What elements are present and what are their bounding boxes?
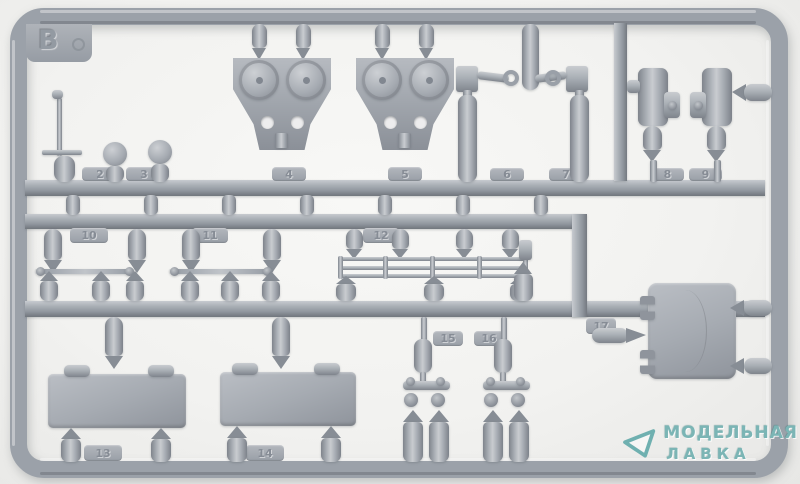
piston-rod [714, 160, 721, 182]
shield-disc-hub [303, 77, 310, 84]
rack-foot-tip [424, 276, 444, 284]
bracket-shell-tip [514, 262, 532, 274]
assembly-shell [483, 422, 503, 462]
shell-part [126, 281, 144, 301]
assembly-wheel [484, 393, 498, 407]
sprue-rail-1 [25, 180, 765, 196]
door-gate-right-tip [730, 300, 744, 316]
assembly-shell-tip [403, 410, 423, 422]
hatch-gate [272, 317, 290, 356]
lever-knob [52, 90, 63, 99]
assembly-shell-tip [483, 410, 503, 422]
lever-rod [57, 98, 62, 156]
linkage-cylinder [458, 95, 477, 182]
assembly-cylinder [414, 339, 432, 373]
assembly-wheel [511, 393, 525, 407]
part-number-tab: 10 [70, 228, 108, 243]
shield-gate [419, 24, 434, 48]
shell-part-tip [61, 428, 81, 439]
shell-part-tip [92, 271, 110, 281]
shell-part-tip [321, 426, 341, 438]
assembly-knob [406, 377, 415, 386]
rail-connector-stub [534, 195, 548, 215]
sprue-rail-vertical-mid [572, 214, 587, 317]
door-gate-right [744, 358, 772, 374]
door-seam [664, 290, 707, 372]
shell-part [40, 281, 58, 301]
part-number-tab: 5 [388, 167, 422, 181]
assembly-shell-tip [429, 410, 449, 422]
sprue-letter-tab: B [26, 24, 92, 62]
piston-stub [744, 84, 772, 101]
shell-part [227, 438, 247, 462]
shell-part-tip [262, 271, 280, 281]
part-number-tab: 13 [84, 445, 122, 461]
ball-pin-head [103, 142, 127, 166]
part-number-tab: 15 [433, 331, 463, 346]
door-gate-left-tip [626, 328, 646, 343]
linkage-cylinder [570, 95, 589, 182]
piston-boss-hub [668, 101, 677, 110]
assembly-knob [486, 377, 495, 386]
shield-hole [261, 116, 274, 129]
part-number-tab: 6 [490, 168, 524, 181]
piston-boss-hub [694, 101, 703, 110]
stamp-icon [72, 38, 85, 51]
assembly-shell-tip [509, 410, 529, 422]
door-hinge [640, 350, 655, 374]
assembly-shell [429, 422, 449, 462]
linkage-block [456, 66, 478, 92]
door-gate-right [744, 300, 772, 316]
frame-highlight-top [40, 10, 756, 13]
watermark-line1: МОДЕЛЬНАЯ [663, 423, 798, 443]
linkage-eye [503, 70, 519, 86]
ball-pin-base [151, 164, 169, 182]
door-gate-right-tip [730, 358, 744, 374]
hatch-gate-tip [272, 356, 290, 369]
rack-foot [336, 284, 356, 301]
shield-hole [384, 116, 397, 129]
rail-connector-stub [456, 195, 470, 215]
shield-gate [296, 24, 311, 48]
piston-stub [627, 80, 640, 93]
bracket-shell [514, 274, 533, 301]
assembly-stem [501, 317, 507, 341]
shell-part-tip [221, 271, 239, 281]
shield-hole [414, 116, 427, 129]
shell-part [44, 229, 62, 260]
shell-part-tip [151, 428, 171, 439]
hatch-gate [105, 317, 123, 356]
hatch-hinge [148, 365, 174, 377]
lever-base [54, 156, 75, 182]
shell-part [321, 438, 341, 462]
watermark-line2: ЛАВКА [663, 445, 798, 463]
sprue-letter: B [38, 25, 59, 56]
piston-body [702, 68, 732, 126]
shell-part [221, 281, 239, 301]
shell-part-tip [227, 426, 247, 438]
assembly-shell [509, 422, 529, 462]
rail-connector-stub [300, 195, 314, 215]
hatch-panel [220, 372, 356, 426]
assembly-knob [436, 377, 445, 386]
rack-post [383, 256, 388, 279]
hatch-hinge [64, 365, 90, 377]
part-number-tab: 14 [246, 445, 284, 461]
rack-gate [502, 229, 519, 249]
frame-highlight-right [766, 40, 769, 446]
frame-highlight-left [12, 40, 15, 446]
shield-clasp [398, 133, 411, 148]
part-number-tab: 4 [272, 167, 306, 181]
shield-gate [252, 24, 267, 48]
shell-part [92, 281, 110, 301]
hatch-hinge [232, 363, 258, 375]
sprue-photo: B 234567891011121314151617 МОДЕЛЬНАЯ ЛАВ… [0, 0, 800, 484]
shield-disc-hub [426, 77, 433, 84]
hatch-gate-tip [105, 356, 123, 369]
assembly-wheel [404, 393, 418, 407]
rack-gate [392, 229, 409, 249]
door-gate-left [592, 328, 628, 343]
shell-part-tip [40, 271, 58, 281]
shell-part-tip [126, 271, 144, 281]
assembly-knob [516, 377, 525, 386]
shell-part [263, 229, 281, 260]
shell-part [61, 439, 81, 462]
piston-rod [650, 160, 657, 182]
piston-neck [643, 126, 662, 150]
rack-post [477, 256, 482, 279]
watermark: МОДЕЛЬНАЯ ЛАВКА [622, 423, 798, 463]
assembly-cylinder [494, 339, 512, 373]
shell-part [182, 229, 200, 260]
shield-disc-hub [379, 77, 386, 84]
shield-hole [291, 116, 304, 129]
lavka-triangle-logo-icon [622, 423, 656, 463]
shield-disc-hub [256, 77, 263, 84]
shield-gate [375, 24, 390, 48]
assembly-wheel [431, 393, 445, 407]
shield-clasp [275, 133, 288, 148]
hatch-panel [48, 374, 186, 428]
shell-part [128, 229, 146, 260]
spindle-knob [170, 267, 179, 276]
lever-arm [42, 150, 82, 155]
rack-gate [456, 229, 473, 249]
rail-connector-stub [66, 195, 80, 215]
shell-part [181, 281, 199, 301]
assembly-stem [421, 317, 427, 341]
rack-foot-tip [336, 276, 356, 284]
rail-connector-stub [378, 195, 392, 215]
hatch-hinge [314, 363, 340, 375]
rail-connector-stub [144, 195, 158, 215]
ball-pin-head [148, 140, 172, 164]
piston-neck [707, 126, 726, 150]
linkage-block [566, 66, 588, 92]
shell-part [262, 281, 280, 301]
assembly-shell [403, 422, 423, 462]
shell-part [151, 439, 171, 462]
shell-part-tip [181, 271, 199, 281]
ball-pin-base [106, 166, 124, 182]
frame-shadow-bottom [40, 472, 756, 475]
door-hinge [640, 296, 655, 320]
rail-connector-stub [222, 195, 236, 215]
sprue-rail-2 [25, 214, 583, 229]
linkage-eye [545, 70, 561, 86]
sprue-rail-vertical-top [614, 23, 627, 181]
frame-shadow-top [40, 21, 756, 24]
bracket-fitting [519, 240, 532, 260]
rack-gate [346, 229, 363, 249]
rack-foot [424, 284, 444, 301]
